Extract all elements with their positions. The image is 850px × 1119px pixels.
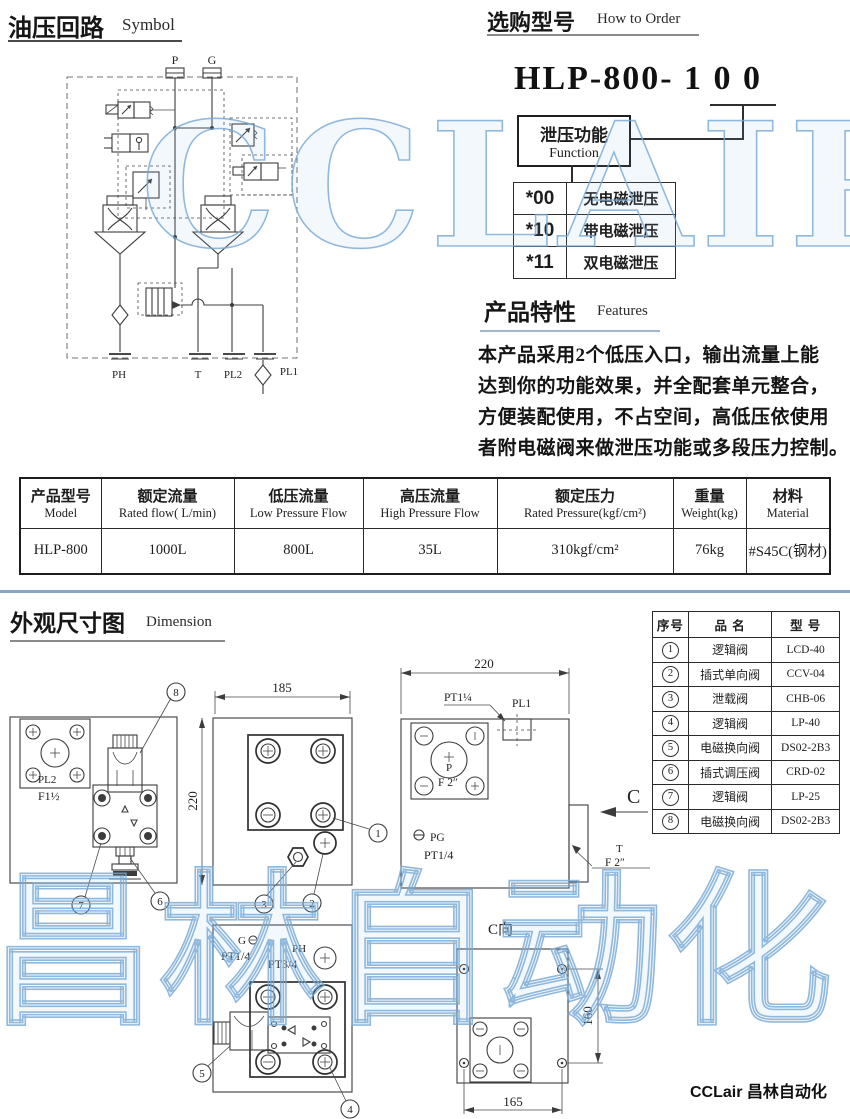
label-t: T bbox=[616, 843, 623, 855]
function-option-row: *10 带电磁泄压 bbox=[514, 215, 676, 247]
spec-header-rated-flow: 额定流量Rated flow( L/min) bbox=[101, 478, 234, 528]
symbol-title-en: Symbol bbox=[122, 15, 175, 35]
callout-2: 2 bbox=[303, 894, 321, 912]
model-code-connector-h bbox=[629, 138, 744, 140]
circuit-port-p-label: P bbox=[172, 53, 179, 67]
svg-text:7: 7 bbox=[78, 900, 84, 912]
function-option-row: *00 无电磁泄压 bbox=[514, 183, 676, 215]
label-ph: PH bbox=[292, 943, 306, 955]
view-front: 220 PT1¼ PL1 P F 2″ PG PT1/4 bbox=[401, 656, 650, 888]
dim-220-top: 220 bbox=[474, 656, 494, 671]
callout-1: 1 bbox=[369, 824, 387, 842]
features-title-rule bbox=[480, 330, 660, 332]
function-option-label: 带电磁泄压 bbox=[567, 215, 676, 247]
callout-3: 3 bbox=[255, 895, 273, 913]
features-line: 达到你的功能效果，并全配套单元整合， bbox=[478, 371, 850, 402]
top-round-plug bbox=[314, 832, 336, 854]
callout-6: 6 bbox=[151, 892, 169, 910]
function-option-label: 双电磁泄压 bbox=[567, 247, 676, 279]
function-box: 泄压功能 Function bbox=[517, 115, 631, 167]
spec-cell-material: #S45C(钢材) bbox=[746, 528, 830, 574]
svg-text:6: 6 bbox=[157, 896, 163, 908]
spec-data-row: HLP-800 1000L 800L 35L 310kgf/cm² 76kg #… bbox=[20, 528, 830, 574]
function-box-en: Function bbox=[519, 146, 629, 162]
spec-cell-low-pressure-flow: 800L bbox=[234, 528, 363, 574]
label-p: P bbox=[446, 762, 452, 774]
label-c-view: C向 bbox=[488, 921, 513, 938]
dim-165: 165 bbox=[503, 1094, 523, 1109]
spec-cell-rated-pressure: 310kgf/cm² bbox=[497, 528, 673, 574]
circuit-port-pl2-label: PL2 bbox=[224, 369, 242, 381]
spec-cell-rated-flow: 1000L bbox=[101, 528, 234, 574]
label-f1half: F1½ bbox=[38, 789, 60, 803]
order-title-rule bbox=[487, 34, 699, 36]
model-code: HLP-800- 1 0 0 bbox=[514, 60, 762, 98]
top-bolt-circles bbox=[256, 739, 335, 827]
view-c-direction: C向 160 165 bbox=[457, 921, 603, 1114]
label-c-arrow: C bbox=[627, 786, 640, 808]
features-text: 本产品采用2个低压入口，输出流量上能 达到你的功能效果，并全配套单元整合， 方便… bbox=[478, 340, 850, 464]
label-pg: PG bbox=[430, 832, 445, 844]
svg-text:5: 5 bbox=[199, 1068, 205, 1080]
callout-5: 5 bbox=[193, 1064, 211, 1082]
circuit-port-g-symbol bbox=[203, 68, 221, 78]
svg-text:3: 3 bbox=[261, 899, 267, 911]
label-pt34: PT3/4 bbox=[268, 957, 297, 971]
spec-cell-weight: 76kg bbox=[673, 528, 746, 574]
function-option-label: 无电磁泄压 bbox=[567, 183, 676, 215]
circuit-port-ph-label: PH bbox=[112, 369, 126, 381]
circuit-solenoid-valve-2 bbox=[233, 163, 286, 180]
svg-text:2: 2 bbox=[309, 898, 315, 910]
svg-text:1: 1 bbox=[375, 828, 381, 840]
label-pt1quarter: PT1¼ bbox=[444, 692, 472, 704]
label-g: G bbox=[238, 935, 246, 947]
svg-text:8: 8 bbox=[173, 687, 179, 699]
symbol-title-cn: 油压回路 bbox=[8, 8, 104, 43]
spec-cell-model: HLP-800 bbox=[20, 528, 101, 574]
spec-header-material: 材料Material bbox=[746, 478, 830, 528]
features-line: 方便装配使用，不占空间，高低压依使用 bbox=[478, 402, 850, 433]
features-line: 者附电磁阀来做泄压功能或多段压力控制。 bbox=[478, 433, 850, 464]
circuit-pilot-valve bbox=[104, 134, 148, 152]
function-option-code: *10 bbox=[514, 215, 567, 247]
dim-220-left: 220 bbox=[185, 791, 200, 811]
features-title-en: Features bbox=[597, 303, 648, 320]
label-pl2: PL2 bbox=[38, 774, 56, 786]
hydraulic-circuit-diagram: P G bbox=[55, 48, 405, 448]
circuit-check-valve-ph bbox=[112, 305, 128, 325]
label-f2: F 2″ bbox=[438, 777, 458, 789]
function-option-row: *11 双电磁泄压 bbox=[514, 247, 676, 279]
order-title-en: How to Order bbox=[597, 11, 680, 28]
label-f2-b: F 2″ bbox=[605, 857, 625, 869]
section-divider bbox=[0, 590, 850, 593]
label-pl1: PL1 bbox=[512, 698, 531, 710]
catalog-page: 油压回路 Symbol P G bbox=[0, 0, 850, 1119]
circuit-solenoid-valve-1 bbox=[106, 102, 175, 118]
circuit-logic-valve-right bbox=[193, 196, 243, 254]
circuit-port-p-symbol bbox=[166, 68, 184, 78]
circuit-port-t-label: T bbox=[195, 369, 202, 381]
circuit-logic-valve-left bbox=[95, 196, 145, 254]
callout-8: 8 bbox=[167, 683, 185, 701]
function-box-connector bbox=[571, 165, 573, 182]
view-bottom: G PT1/4 PH PT3/4 bbox=[193, 925, 359, 1118]
function-option-code: *00 bbox=[514, 183, 567, 215]
function-option-code: *11 bbox=[514, 247, 567, 279]
circuit-port-pl1-label: PL1 bbox=[280, 366, 298, 378]
svg-text:4: 4 bbox=[347, 1104, 353, 1116]
dim-185: 185 bbox=[272, 680, 292, 695]
symbol-title-rule bbox=[8, 40, 182, 42]
spec-header-rated-pressure: 额定压力Rated Pressure(kgf/cm²) bbox=[497, 478, 673, 528]
spec-header-weight: 重量Weight(kg) bbox=[673, 478, 746, 528]
dim-160: 160 bbox=[580, 1006, 595, 1026]
label-pt14-a: PT1/4 bbox=[424, 848, 453, 862]
features-title-cn: 产品特性 bbox=[484, 293, 576, 327]
spec-header-high-pressure-flow: 高压流量High Pressure Flow bbox=[363, 478, 497, 528]
spec-table: 产品型号Model 额定流量Rated flow( L/min) 低压流量Low… bbox=[19, 477, 831, 575]
side-valve-assembly bbox=[93, 735, 157, 879]
circuit-check-valve-pl1 bbox=[255, 365, 271, 394]
circuit-relief-valve-left bbox=[133, 172, 159, 210]
label-pt14-b: PT1/4 bbox=[221, 949, 250, 963]
spec-header-model: 产品型号Model bbox=[20, 478, 101, 528]
spec-cell-high-pressure-flow: 35L bbox=[363, 528, 497, 574]
model-code-connector-v bbox=[742, 104, 744, 140]
circuit-port-g-label: G bbox=[208, 53, 217, 67]
order-title-cn: 选购型号 bbox=[487, 5, 575, 37]
function-options-table: *00 无电磁泄压 *10 带电磁泄压 *11 双电磁泄压 bbox=[513, 182, 676, 279]
top-hex-plug bbox=[288, 848, 308, 866]
view-side: PL2 F1½ bbox=[10, 683, 185, 914]
view-top: 185 220 bbox=[185, 680, 387, 913]
dimension-drawings: PL2 F1½ bbox=[0, 615, 850, 1119]
function-box-cn: 泄压功能 bbox=[519, 121, 629, 146]
features-line: 本产品采用2个低压入口，输出流量上能 bbox=[478, 340, 850, 371]
spec-header-low-pressure-flow: 低压流量Low Pressure Flow bbox=[234, 478, 363, 528]
bottom-solenoid-valve bbox=[214, 1012, 330, 1053]
spec-header-row: 产品型号Model 额定流量Rated flow( L/min) 低压流量Low… bbox=[20, 478, 830, 528]
callout-7: 7 bbox=[72, 896, 90, 914]
callout-4: 4 bbox=[341, 1100, 359, 1118]
circuit-relief-valve-right bbox=[232, 124, 257, 146]
